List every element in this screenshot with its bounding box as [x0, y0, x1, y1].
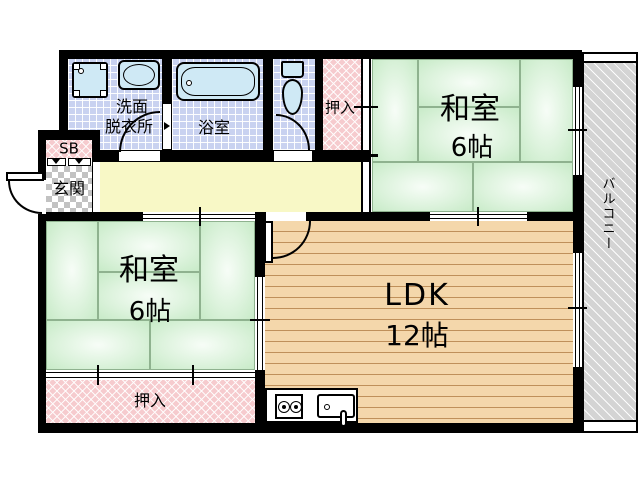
- kitchen-counter: [265, 388, 358, 423]
- tatami-mat: [372, 59, 418, 162]
- window-tick: [568, 129, 587, 131]
- wall-west-bath-block: [59, 50, 68, 140]
- wall-shoebox-side: [92, 130, 100, 162]
- toilet-tank: [281, 61, 304, 78]
- tatami-mat: [473, 162, 573, 212]
- balcony-label: バルコニー: [601, 177, 614, 252]
- entrance-step-edge: [92, 162, 100, 212]
- door-handle-tick: [192, 365, 194, 385]
- door-handle-tick: [477, 207, 479, 226]
- washroom-label-line2: 脱衣所: [105, 119, 153, 135]
- drain-icon: [78, 68, 84, 74]
- pan-corner: [100, 90, 107, 97]
- hallway-floor: [100, 162, 361, 212]
- bathtub: [176, 62, 260, 101]
- folding-door-arrow-icon: [164, 122, 170, 130]
- pan-corner: [100, 63, 107, 70]
- washroom-label-line1: 洗面: [116, 99, 148, 115]
- ldk-size: 12帖: [385, 322, 449, 350]
- wall-bottom: [38, 423, 583, 433]
- wall-bathroom-toilet: [263, 59, 273, 150]
- closet-north-label: 押入: [325, 101, 355, 116]
- door-handle-tick: [199, 207, 201, 226]
- tatami-mat: [200, 221, 255, 320]
- tatami-mat: [520, 59, 573, 162]
- entrance-door-swing-arc: [8, 181, 42, 214]
- wash-basin: [118, 60, 160, 90]
- balcony-rail-top: [584, 54, 636, 63]
- kitchen-sink: [317, 394, 355, 418]
- drain-icon: [324, 404, 330, 410]
- arrow-down-icon: [75, 159, 83, 164]
- ldk-door-leaf: [264, 221, 273, 263]
- arrow-down-icon: [52, 159, 60, 164]
- sliding-door-closet-south: [46, 370, 255, 380]
- sliding-door-tatami-sw-ldk: [255, 277, 265, 370]
- wall-toilet-closet: [315, 59, 323, 150]
- tatami-sw-name: 和室: [119, 256, 179, 286]
- closet-south-label: 押入: [134, 393, 166, 409]
- door-handle-tick: [250, 319, 270, 321]
- ldk-name: LDK: [384, 281, 450, 311]
- door-handle-tick: [354, 154, 378, 157]
- floor-plan: SB 玄関 洗面 脱衣所 浴室 押入 和室 6帖 和室 6帖 LDK 12帖 押…: [0, 0, 640, 480]
- tatami-mat: [372, 162, 473, 212]
- door-handle-tick: [97, 365, 99, 385]
- window-tatami-ne-balcony: [573, 87, 582, 175]
- tatami-mat: [46, 221, 98, 320]
- tatami-mat: [46, 320, 150, 370]
- wall-shoebox-top: [38, 130, 100, 140]
- window-ldk-balcony: [573, 253, 582, 367]
- stove-burner-icon: [290, 401, 302, 413]
- entrance-label: 玄関: [53, 181, 85, 197]
- faucet: [340, 410, 347, 427]
- tatami-ne-name: 和室: [440, 95, 500, 125]
- wall-top: [59, 50, 582, 59]
- stove: [275, 394, 303, 419]
- door-handle-tick: [354, 106, 378, 108]
- basin-bowl: [123, 64, 155, 86]
- bathroom-label: 浴室: [198, 120, 230, 136]
- pan-corner: [73, 90, 80, 97]
- stove-burner-icon: [278, 401, 290, 413]
- sliding-door-closet-north: [361, 59, 371, 212]
- tatami-sw-size: 6帖: [129, 299, 172, 325]
- drain-icon: [186, 80, 192, 86]
- bathtub-inner: [181, 67, 255, 96]
- tatami-ne-size: 6帖: [451, 135, 494, 161]
- washing-machine-pan: [72, 62, 108, 98]
- ldk-door-opening: [266, 212, 306, 221]
- entrance-door-leaf: [6, 172, 44, 181]
- toilet-door-threshold: [274, 150, 312, 162]
- tatami-mat: [150, 320, 255, 370]
- window-tick: [568, 307, 587, 309]
- balcony-rail-bottom: [584, 420, 636, 431]
- shoe-box-label: SB: [59, 142, 79, 157]
